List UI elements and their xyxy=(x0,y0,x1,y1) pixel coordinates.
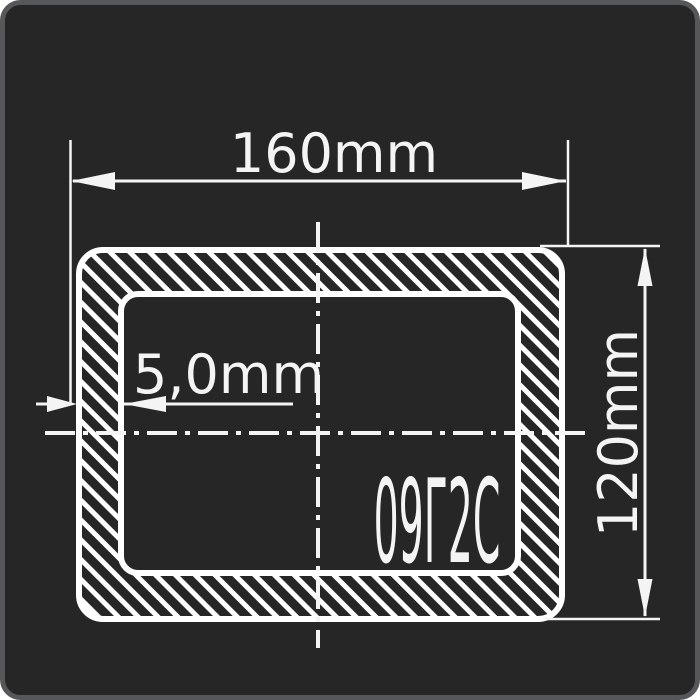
dimension-thickness-label: 5,0mm xyxy=(133,343,324,406)
dimension-width-label: 160mm xyxy=(230,122,438,185)
dimension-height-label: 120mm xyxy=(587,329,650,537)
tube-cross-section-drawing: 09Г2С 160mm 120mm 5,0mm xyxy=(0,0,700,700)
drawing-canvas: 09Г2С 160mm 120mm 5,0mm xyxy=(0,0,700,700)
material-grade-label: 09Г2С xyxy=(374,456,501,590)
